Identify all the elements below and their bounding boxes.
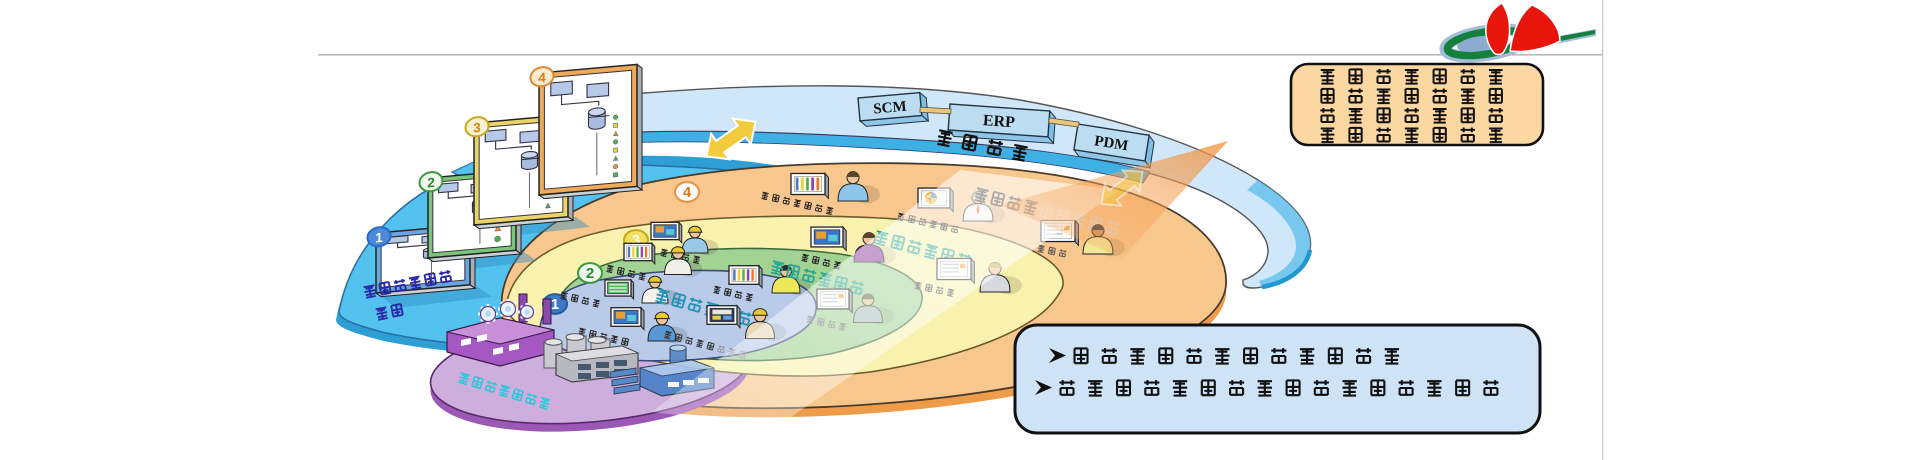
svg-text:4: 4 [538, 70, 546, 86]
svg-text:1: 1 [375, 230, 383, 246]
svg-text:ERP: ERP [982, 112, 1015, 131]
svg-text:2: 2 [586, 265, 594, 282]
svg-text:1: 1 [551, 296, 559, 313]
svg-text:4: 4 [683, 184, 692, 201]
svg-text:3: 3 [473, 120, 481, 136]
svg-text:SCM: SCM [873, 99, 908, 118]
svg-text:2: 2 [427, 175, 435, 191]
